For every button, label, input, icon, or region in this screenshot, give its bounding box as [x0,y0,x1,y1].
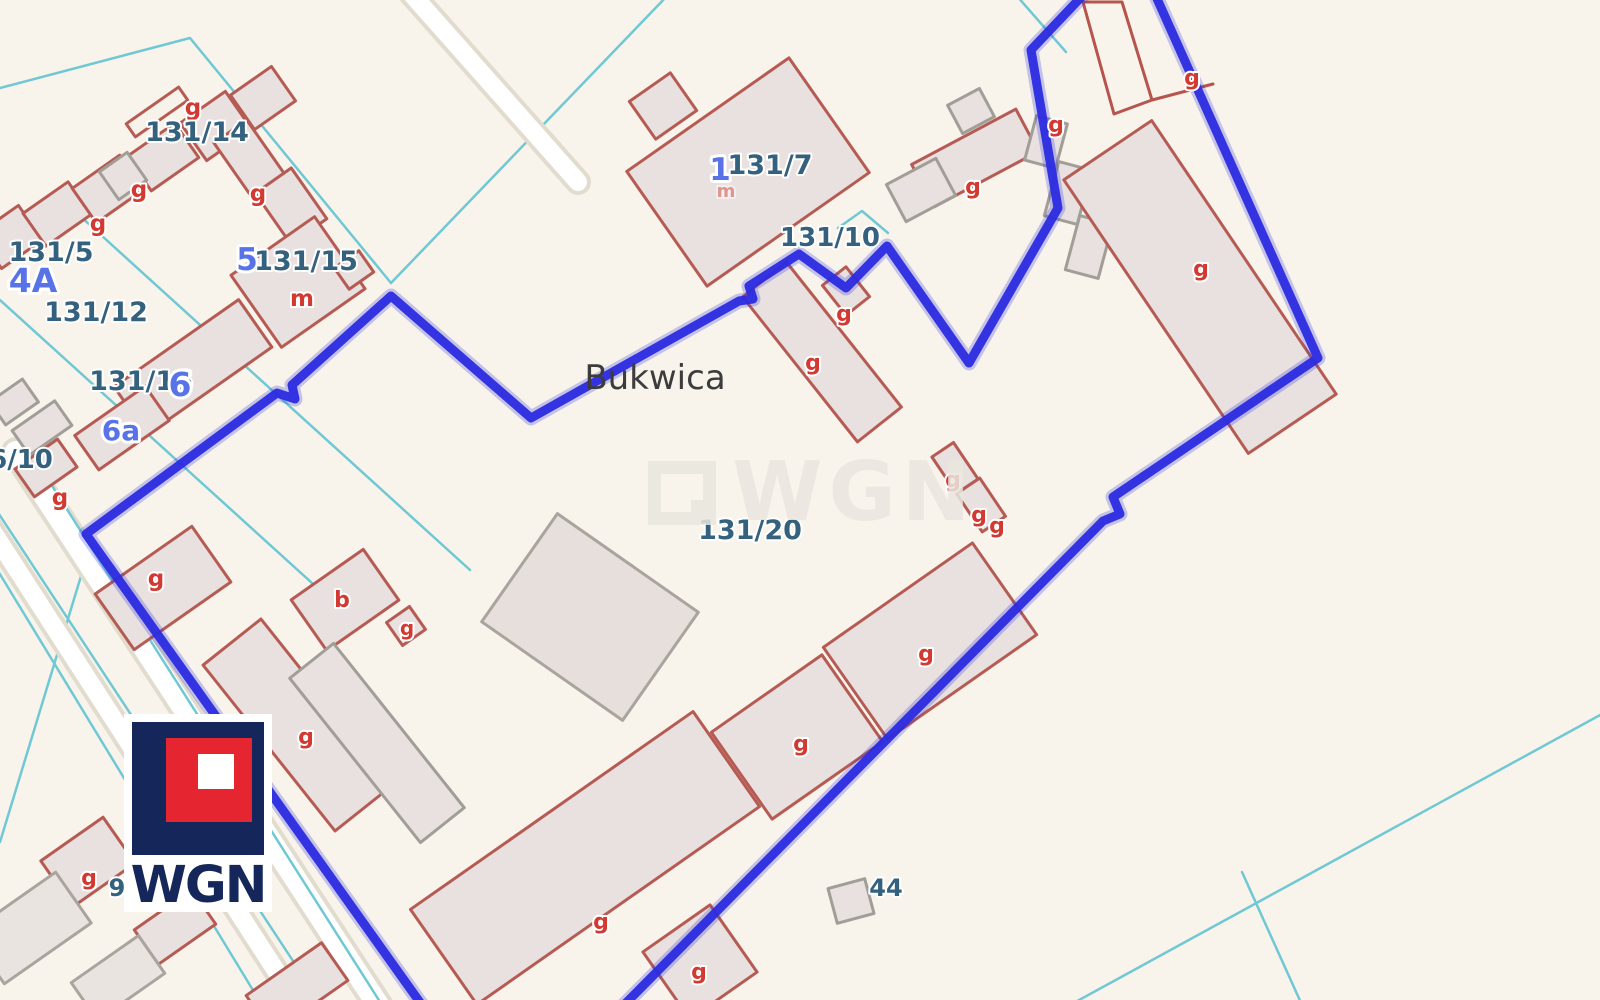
building-letter: g [965,175,981,200]
parcel-label-6-10: 6/10 [0,445,53,475]
parcel-label-131-20: 131/20 [698,515,802,546]
building-letter: g [1048,113,1064,138]
building-letter: g [945,468,961,493]
address-label-6: 6 [169,365,192,404]
building-letter: g [250,181,266,207]
road-surface [408,0,578,182]
wgn-logo-red-square [166,738,252,822]
parcel-label-131-10: 131/10 [780,223,880,253]
building-44 [828,879,874,924]
building-letter: g [400,616,414,640]
cyan-parcel-line [1242,872,1302,1000]
building-letter: g [81,866,97,891]
building-letter: g [793,732,809,757]
parcel-label-131-12: 131/12 [44,297,148,328]
map-stage: g131/14ggg131/54A131/125131/15m131/1666a… [0,0,1600,1000]
building-letter: g [1184,66,1200,91]
building-letter: g [836,302,852,327]
address-label-4a: 4A [9,261,58,300]
building-letter: g [691,960,707,985]
wgn-logo-text: WGN [124,856,272,915]
address-label-9: 9 [109,874,126,902]
building-large-center [482,514,699,721]
building-large-east [1064,121,1336,454]
building-letter: m [290,286,314,312]
building-letter: g [148,566,164,592]
building-letter: g [971,503,987,528]
building-letter: g [805,351,821,376]
building-letter: g [918,642,934,667]
parcel-label-131-15: 131/15 [254,246,358,277]
building-letter: g [1193,257,1209,282]
building-131-10 [743,262,902,442]
building-letter: g [593,910,609,935]
building-letter: g [298,725,314,750]
red-parcel-strip [1083,2,1152,114]
wgn-logo-navy-square [132,722,264,855]
building-letter: g [90,211,106,237]
parcel-label-131-7: 131/7 [727,150,812,181]
building-letter: b [334,588,350,613]
cyan-parcel-line [1070,714,1600,1000]
place-label-bukwica: Bukwica [584,358,725,398]
wgn-logo: WGN [124,714,272,912]
building-letter: g [989,514,1005,539]
parcel-label-131-14: 131/14 [145,117,249,148]
building-letter: g [131,177,147,203]
building-letter: m [717,181,736,202]
address-label-6a: 6a [102,414,140,447]
wgn-logo-white-square [198,754,234,789]
parcel-label-44: 44 [869,874,902,902]
building-letter: g [52,485,68,511]
